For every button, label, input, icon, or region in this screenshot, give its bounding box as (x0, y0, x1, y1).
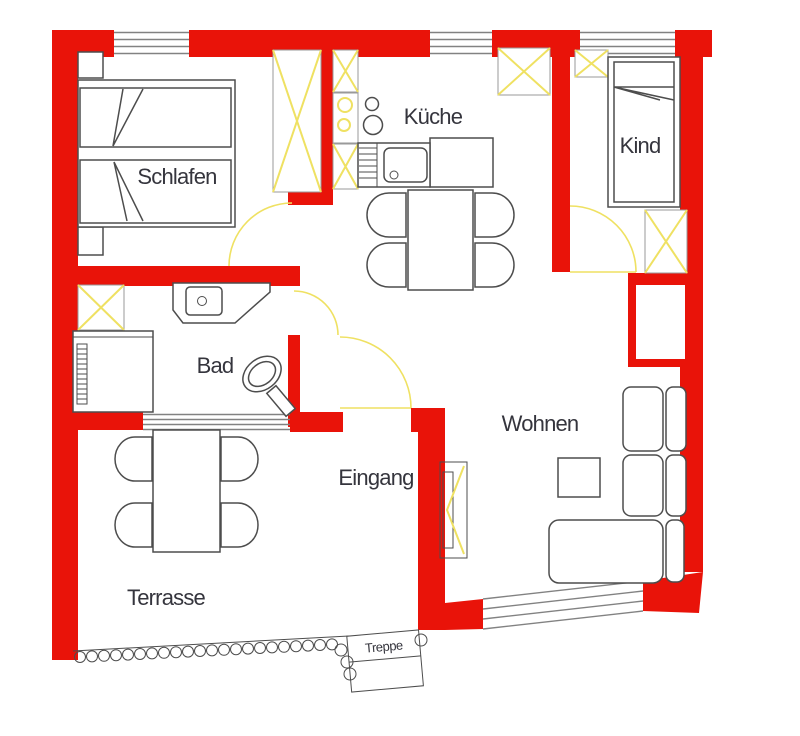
window-kueche (430, 33, 492, 54)
stairs: Treppe (347, 630, 424, 692)
room-label-terrasse: Terrasse (127, 585, 206, 610)
cooktop-burner-large-icon (364, 116, 383, 135)
room-label-schlafen: Schlafen (137, 164, 216, 189)
room-label-treppe: Treppe (364, 637, 403, 655)
wall-schlafen-kueche (321, 50, 333, 192)
chair (475, 243, 514, 287)
chair (115, 437, 152, 481)
sofa-cushion (666, 387, 686, 451)
terrace-edge-line (73, 636, 349, 651)
room-label-bad: Bad (197, 353, 234, 378)
chair (367, 243, 406, 287)
chair (221, 503, 258, 547)
room-label-kueche: Küche (404, 104, 463, 129)
wall-bad-terrasse-2 (290, 412, 343, 432)
nightstand-top (78, 52, 103, 78)
floor-plan-page: Treppe Schlafen Küche Kind Bad Eingang W… (0, 0, 800, 736)
window-schlafen (114, 33, 189, 54)
cabinet-kind-small-icon (575, 50, 608, 77)
shaft-left (628, 285, 636, 367)
cabinet-hall-icon (498, 48, 550, 95)
sofa-cushion (623, 387, 663, 451)
sink-unit (358, 143, 430, 187)
room-label-eingang: Eingang (338, 465, 413, 490)
dining-table (408, 190, 473, 290)
terrace-table (153, 430, 220, 552)
entry-door-swing-icon (447, 466, 464, 554)
room-label-kind: Kind (620, 133, 661, 158)
chair (221, 437, 258, 481)
wall-eingang-right (418, 430, 445, 630)
window-wohnen-terrace (483, 581, 643, 629)
cabinet-kueche-unit-icon (333, 93, 358, 143)
cabinet-bad-icon (78, 285, 124, 330)
sofa-cushion (666, 455, 686, 516)
wall-kueche-kind (552, 57, 570, 272)
side-table (558, 458, 600, 497)
stairs-step-line (349, 656, 421, 662)
door-arc-hall (340, 337, 411, 408)
chair (115, 503, 152, 547)
wall-eingang-jog (411, 408, 445, 432)
room-label-wohnen: Wohnen (502, 411, 579, 436)
window-bad (143, 415, 290, 430)
wardrobe-schlafen-icon (273, 50, 321, 192)
cabinet-kueche-top-icon (333, 50, 358, 92)
nightstand-bottom (78, 227, 103, 255)
door-arc-bad (294, 291, 338, 335)
shaft-inner (636, 285, 685, 359)
wall-kind-bottom (628, 273, 703, 285)
counter-corner (430, 138, 493, 187)
shaft-bottom (628, 359, 685, 367)
terrasse-furniture (115, 430, 258, 552)
bathtub (73, 331, 153, 412)
cooktop-burner-small-icon (366, 98, 379, 111)
chair (367, 193, 406, 237)
cabinet-kueche-low-icon (333, 144, 358, 189)
wall-bad-terrasse-1 (52, 412, 143, 430)
sofa (549, 520, 663, 583)
door-arc-kind (570, 206, 636, 272)
chair (475, 193, 514, 237)
sofa-cushion (623, 455, 663, 516)
wall-eingang-bottom (445, 599, 483, 630)
floor-plan-drawing: Treppe Schlafen Küche Kind Bad Eingang W… (0, 0, 800, 736)
double-bed (78, 80, 235, 227)
kind-furniture (608, 57, 680, 207)
wardrobe-kind-icon (645, 210, 687, 273)
wall-schlafen-kueche-foot (288, 192, 333, 205)
sofa-cushion (666, 520, 684, 582)
kind-bed (608, 57, 680, 207)
schlafen-furniture (78, 52, 235, 255)
door-arc-schlafen (229, 203, 292, 266)
